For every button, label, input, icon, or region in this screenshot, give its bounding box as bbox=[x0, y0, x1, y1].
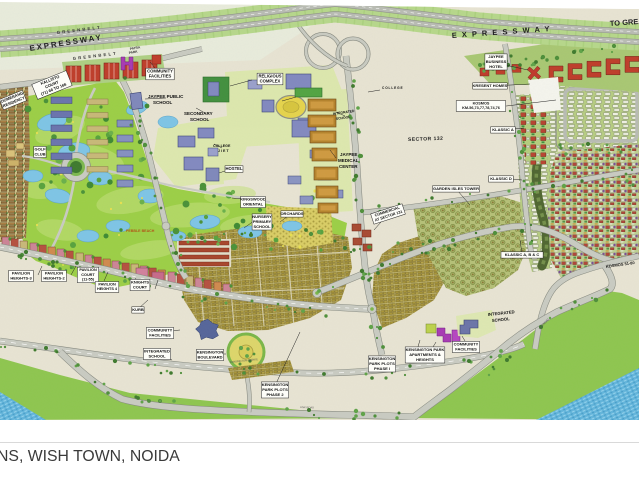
svg-text:MEDICAL: MEDICAL bbox=[338, 158, 359, 163]
svg-text:GARDEN ISLES TOWER: GARDEN ISLES TOWER bbox=[433, 186, 479, 191]
svg-text:FACILITIES: FACILITIES bbox=[149, 332, 171, 337]
svg-text:ORIENTAL: ORIENTAL bbox=[243, 201, 264, 206]
svg-text:JAYPEE: JAYPEE bbox=[340, 152, 357, 157]
svg-text:JAYPEE PUBLIC: JAYPEE PUBLIC bbox=[148, 94, 184, 99]
svg-text:HEIGHTS: HEIGHTS bbox=[416, 357, 434, 362]
svg-text:KLASSIC A: KLASSIC A bbox=[492, 127, 514, 132]
svg-text:KLASSIC D: KLASSIC D bbox=[490, 176, 512, 181]
svg-text:KM-56,73,77,78,74,76: KM-56,73,77,78,74,76 bbox=[462, 106, 500, 110]
svg-text:J I E T: J I E T bbox=[218, 149, 229, 153]
svg-text:PHASE I: PHASE I bbox=[374, 366, 390, 371]
svg-text:KOSMOS: KOSMOS bbox=[473, 102, 490, 106]
svg-text:KLASSIC A, B & C: KLASSIC A, B & C bbox=[505, 252, 540, 257]
svg-text:BOULEVARD: BOULEVARD bbox=[197, 354, 222, 359]
svg-text:C O L L E G E: C O L L E G E bbox=[382, 86, 403, 90]
svg-text:NS, WISH TOWN, NOIDA: NS, WISH TOWN, NOIDA bbox=[0, 448, 180, 465]
svg-text:HOSTEL: HOSTEL bbox=[226, 166, 243, 171]
svg-text:PAVILION: PAVILION bbox=[79, 268, 97, 272]
svg-text:SECONDARY: SECONDARY bbox=[184, 111, 213, 116]
svg-text:FACILITIES: FACILITIES bbox=[455, 346, 477, 351]
svg-text:SCHOOL: SCHOOL bbox=[190, 117, 210, 122]
svg-text:COMPLEX: COMPLEX bbox=[260, 79, 281, 84]
svg-text:CENTER: CENTER bbox=[339, 164, 358, 169]
svg-text:HEIGHTS-3: HEIGHTS-3 bbox=[10, 275, 32, 280]
svg-text:COURT: COURT bbox=[81, 273, 95, 277]
svg-text:ORCHARDS: ORCHARDS bbox=[280, 211, 303, 216]
svg-text:FACILITIES: FACILITIES bbox=[149, 74, 172, 79]
svg-text:KURB: KURB bbox=[132, 307, 144, 312]
svg-text:SCHOOL: SCHOOL bbox=[253, 224, 271, 229]
svg-text:SCHOOL: SCHOOL bbox=[148, 353, 166, 358]
svg-text:PHASE 2: PHASE 2 bbox=[266, 392, 284, 397]
svg-text:HOTEL: HOTEL bbox=[489, 64, 503, 69]
svg-text:COURT: COURT bbox=[133, 284, 148, 289]
svg-text:HEIGHTS 4: HEIGHTS 4 bbox=[97, 287, 118, 291]
svg-text:KRESENT HOMES: KRESENT HOMES bbox=[473, 83, 508, 88]
svg-text:SCHOOL: SCHOOL bbox=[153, 100, 173, 105]
svg-text:COLLEGE: COLLEGE bbox=[213, 144, 231, 148]
svg-text:LINK ROAD: LINK ROAD bbox=[300, 405, 314, 409]
svg-text:CLUB: CLUB bbox=[34, 151, 45, 156]
svg-text:(11-55): (11-55) bbox=[82, 278, 95, 282]
svg-text:PEBBLE BEACH: PEBBLE BEACH bbox=[126, 229, 155, 233]
svg-text:PAVILION: PAVILION bbox=[98, 283, 116, 287]
svg-text:SECTOR 132: SECTOR 132 bbox=[408, 136, 444, 143]
svg-text:HEIGHTS-2: HEIGHTS-2 bbox=[43, 275, 65, 280]
